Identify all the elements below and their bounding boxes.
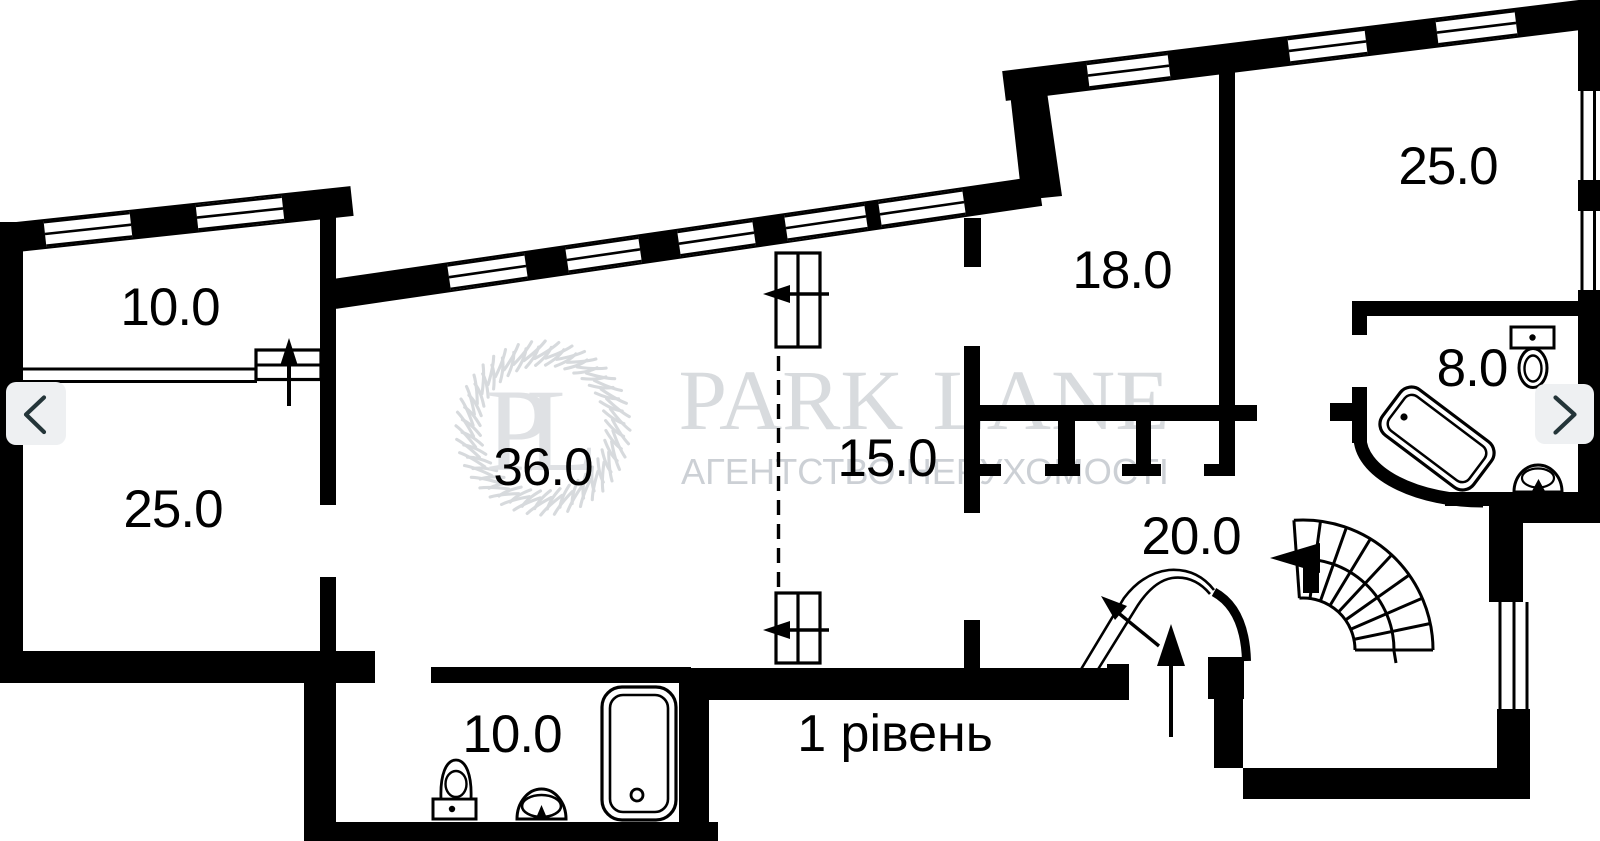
svg-text:15.0: 15.0: [837, 429, 936, 488]
svg-text:8.0: 8.0: [1437, 339, 1508, 398]
svg-text:36.0: 36.0: [493, 438, 592, 497]
svg-text:25.0: 25.0: [123, 480, 222, 539]
svg-text:10.0: 10.0: [120, 278, 219, 337]
svg-text:18.0: 18.0: [1072, 241, 1171, 300]
svg-text:10.0: 10.0: [462, 705, 561, 764]
svg-text:1 рівень: 1 рівень: [797, 705, 993, 763]
svg-text:25.0: 25.0: [1398, 137, 1497, 196]
svg-text:20.0: 20.0: [1141, 507, 1240, 566]
